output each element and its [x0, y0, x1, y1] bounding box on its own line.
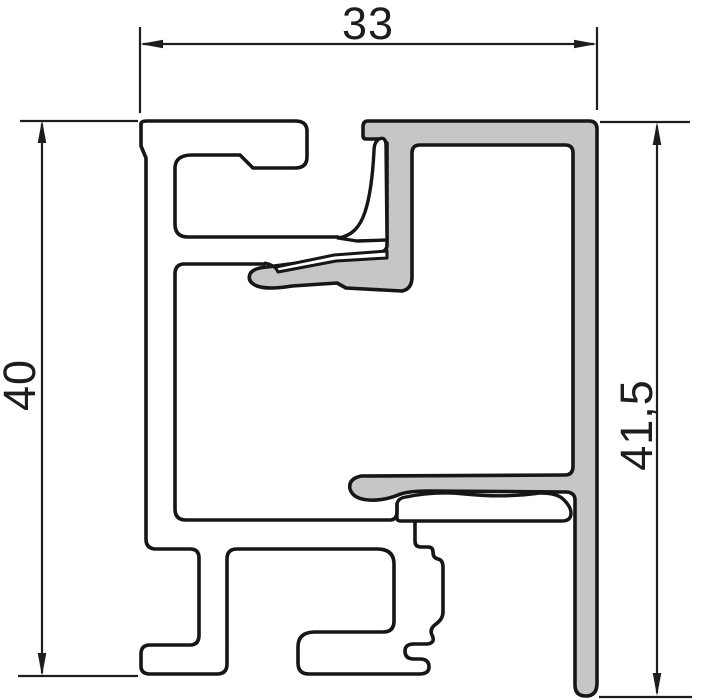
dimension-height-right-label: 41,5 [611, 379, 662, 471]
dimension-width-label: 33 [342, 0, 394, 49]
drawing-background [0, 0, 717, 700]
profile-cross-section-svg: 33 40 41,5 [0, 0, 717, 700]
frame-glazing-ledge [397, 493, 571, 521]
technical-drawing: 33 40 41,5 [0, 0, 717, 700]
dimension-height-left-label: 40 [0, 359, 45, 411]
